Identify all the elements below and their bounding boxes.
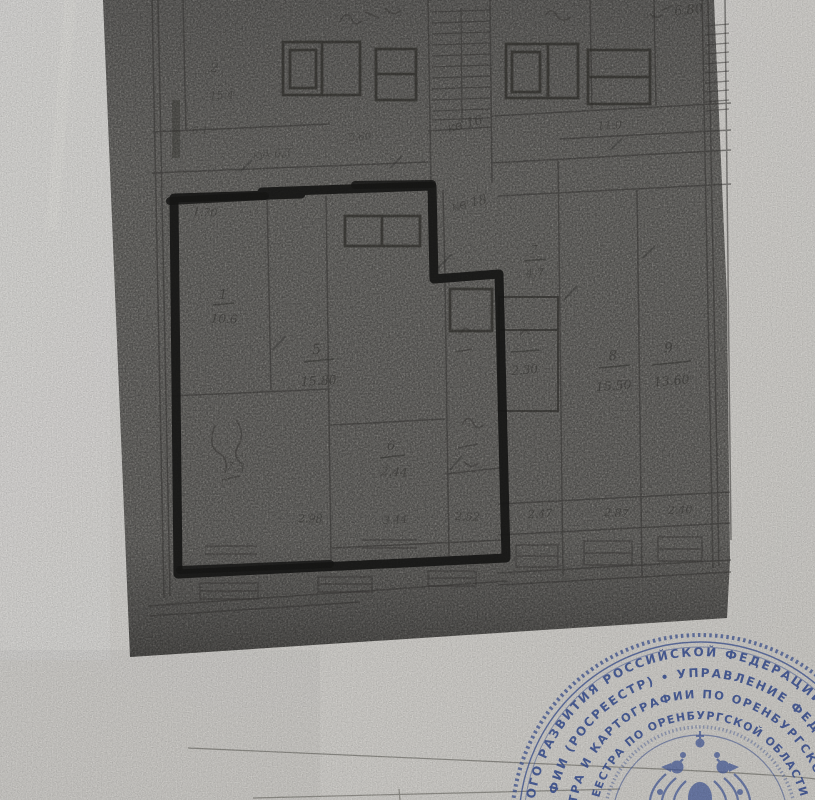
photographed-document-page: 6,80 кв 16 кв 18 2 15.4 6.1 кух 6,3 5.60… bbox=[0, 0, 815, 800]
photo-grain-overlay bbox=[0, 0, 815, 800]
document-photo-canvas: 6,80 кв 16 кв 18 2 15.4 6.1 кух 6,3 5.60… bbox=[0, 0, 815, 800]
